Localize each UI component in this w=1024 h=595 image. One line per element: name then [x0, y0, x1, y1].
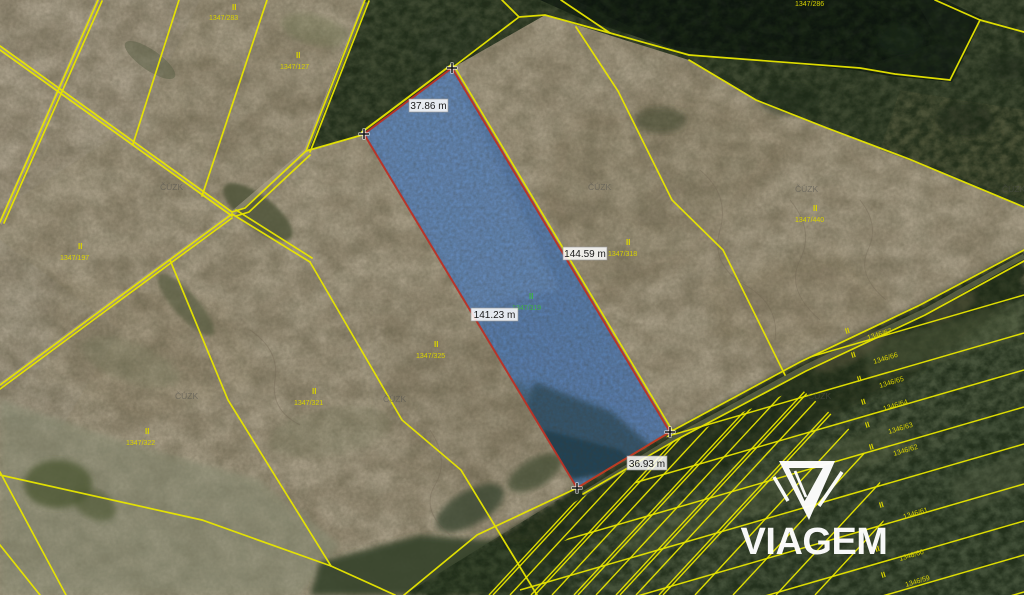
svg-text:1347/322: 1347/322: [126, 440, 155, 447]
svg-text:VIAGEM: VIAGEM: [741, 521, 888, 563]
svg-text:1347/283: 1347/283: [209, 15, 238, 22]
svg-text:1347/440: 1347/440: [795, 217, 824, 224]
svg-text:II: II: [296, 51, 300, 60]
svg-text:144.59 m: 144.59 m: [564, 249, 606, 260]
svg-text:II: II: [232, 3, 236, 12]
svg-text:II: II: [813, 204, 817, 213]
svg-text:II: II: [434, 340, 438, 349]
svg-text:ČÚZK: ČÚZK: [588, 182, 611, 192]
svg-text:ČÚZK: ČÚZK: [795, 184, 818, 194]
svg-text:37.86 m: 37.86 m: [410, 101, 446, 112]
svg-text:ČÚZK: ČÚZK: [160, 182, 183, 192]
svg-text:1347/318: 1347/318: [608, 251, 637, 258]
svg-text:II: II: [529, 292, 533, 301]
svg-text:1347/197: 1347/197: [60, 255, 89, 262]
svg-text:II: II: [78, 242, 82, 251]
svg-text:141.23 m: 141.23 m: [474, 310, 516, 321]
svg-text:36.93 m: 36.93 m: [629, 459, 665, 470]
svg-text:II: II: [312, 387, 316, 396]
svg-text:ČÚZK: ČÚZK: [808, 391, 831, 401]
svg-text:ČÚZK: ČÚZK: [383, 394, 406, 404]
svg-text:1347/127: 1347/127: [280, 64, 309, 71]
svg-text:1347/325: 1347/325: [416, 353, 445, 360]
svg-text:II: II: [626, 238, 630, 247]
svg-text:1347/321: 1347/321: [294, 400, 323, 407]
svg-text:II: II: [145, 427, 149, 436]
svg-text:1347/286: 1347/286: [795, 1, 824, 8]
svg-text:ČÚZK: ČÚZK: [175, 391, 198, 401]
svg-text:ČÚZK: ČÚZK: [1002, 184, 1024, 194]
